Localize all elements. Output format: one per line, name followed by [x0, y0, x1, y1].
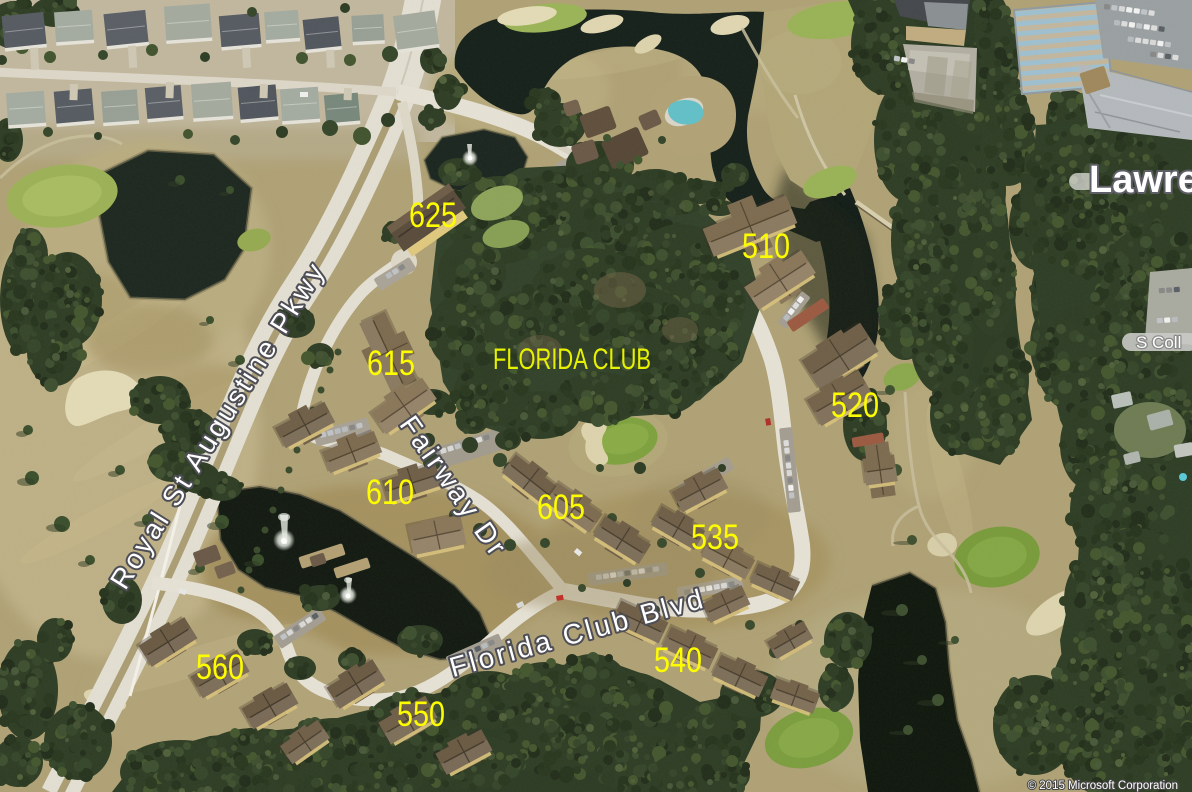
svg-text:520: 520 [831, 386, 879, 425]
svg-text:FLORIDA CLUB: FLORIDA CLUB [493, 343, 651, 376]
svg-text:S Coll: S Coll [1136, 333, 1181, 352]
svg-text:550: 550 [397, 695, 445, 734]
svg-text:535: 535 [691, 518, 739, 557]
svg-text:540: 540 [654, 641, 702, 680]
svg-text:© 2015 Microsoft Corporation: © 2015 Microsoft Corporation [1028, 780, 1178, 792]
svg-text:605: 605 [537, 488, 585, 527]
svg-text:610: 610 [366, 473, 414, 512]
svg-text:615: 615 [367, 344, 415, 383]
svg-text:625: 625 [409, 196, 457, 235]
svg-text:Lawren: Lawren [1089, 159, 1192, 201]
svg-text:560: 560 [196, 648, 244, 687]
svg-text:510: 510 [742, 227, 790, 266]
